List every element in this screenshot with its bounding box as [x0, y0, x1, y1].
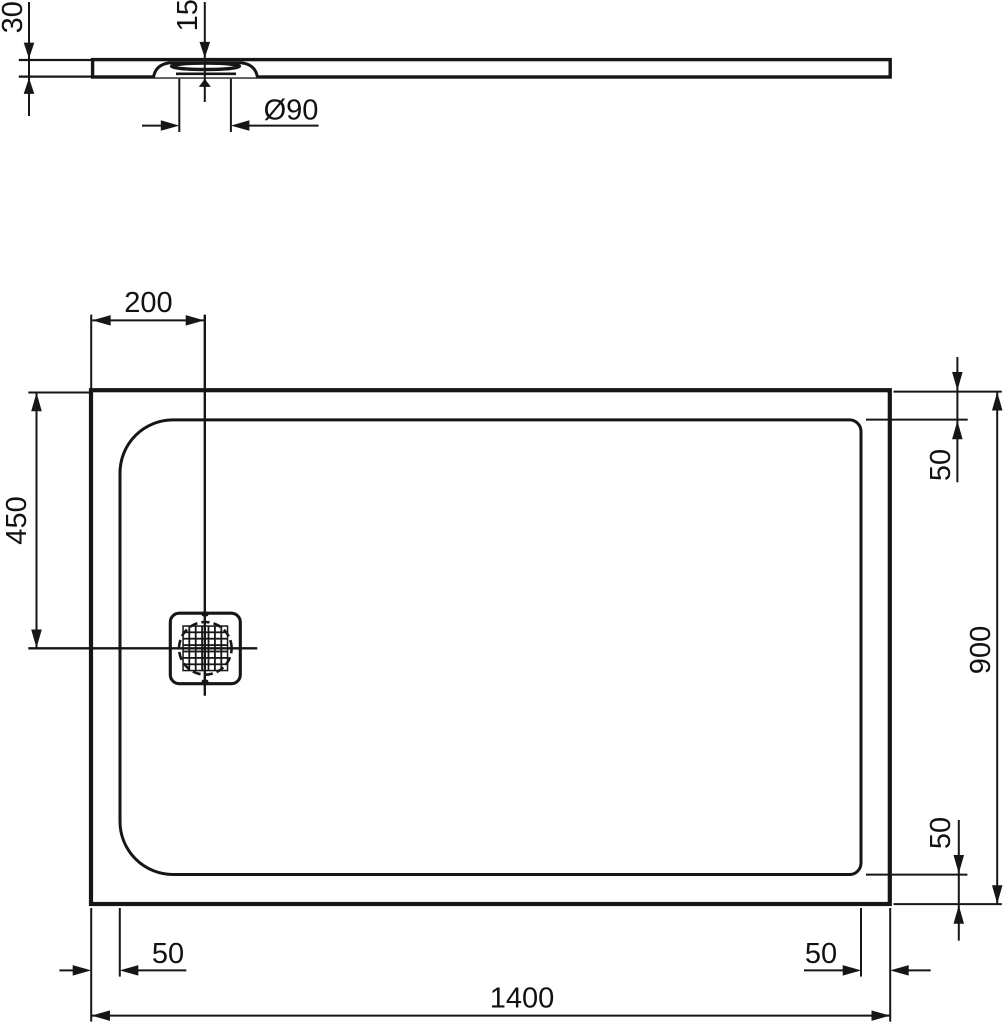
svg-text:1400: 1400	[490, 983, 555, 1015]
svg-text:50: 50	[925, 817, 957, 849]
svg-text:50: 50	[805, 938, 837, 970]
svg-text:200: 200	[124, 287, 172, 319]
svg-text:15: 15	[172, 0, 204, 31]
svg-text:50: 50	[925, 449, 957, 481]
svg-text:450: 450	[1, 496, 33, 544]
svg-text:900: 900	[965, 626, 997, 674]
svg-text:30: 30	[0, 1, 29, 33]
svg-text:50: 50	[152, 938, 184, 970]
svg-text:Ø90: Ø90	[264, 95, 319, 127]
